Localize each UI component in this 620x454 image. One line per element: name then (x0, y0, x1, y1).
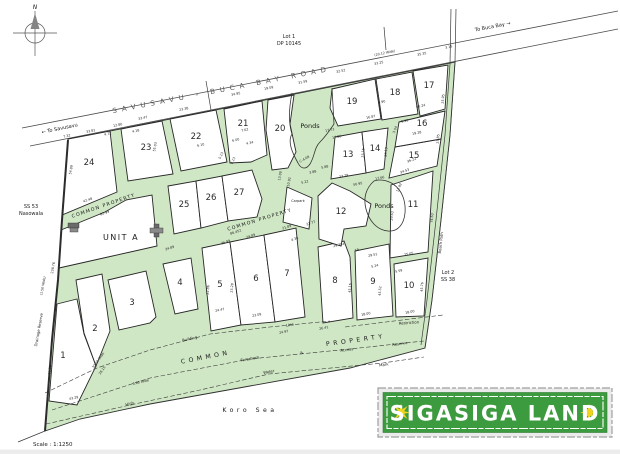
map-label: N (33, 4, 38, 11)
dimension-label: 33.25 (374, 60, 384, 66)
dimension-label: 23.85 (436, 134, 441, 144)
map-label: Lot 1 (283, 34, 296, 40)
lot-number-16: 16 (417, 119, 428, 129)
map-label: Ponds (374, 202, 394, 210)
lot-number-18: 18 (390, 88, 401, 98)
sigasiga-logo: SIGASIGA LAND (378, 388, 612, 437)
lot-number-3: 3 (129, 298, 134, 308)
lot-number-14: 14 (370, 144, 381, 154)
dimension-label: 23.15 (361, 148, 366, 158)
survey-plan-page: SIGASIGA LAND Scale : 1:1250 7.3233.8112… (0, 0, 620, 454)
lot-number-8: 8 (332, 276, 337, 286)
scale-label: Scale : 1:1250 (33, 442, 73, 448)
lot-number-27: 27 (234, 188, 245, 198)
dimension-label: (20.12 Wide) (374, 49, 396, 57)
survey-plan-map: SIGASIGA LAND Scale : 1:1250 7.3233.8112… (0, 0, 620, 454)
lot-number-26: 26 (206, 193, 217, 203)
dimension-label: 25.95 (441, 94, 446, 104)
lot-number-13: 13 (343, 150, 354, 160)
dimension-label: 19 (354, 248, 359, 253)
lot-number-15: 15 (409, 151, 420, 161)
lot-number-1: 1 (60, 351, 65, 361)
logo-text: SIGASIGA LAND (390, 402, 601, 426)
map-label: Ponds (300, 122, 320, 130)
map-label: ← To Savusavu (41, 122, 78, 136)
map-label: To Buca Bay → (474, 21, 512, 34)
survey-tick-east (384, 27, 386, 50)
map-label: Mark (379, 361, 390, 367)
dimension-label: 74.63 (430, 213, 435, 223)
dimension-label: 45.52 (378, 286, 383, 296)
dimension-label: 23.38 (179, 106, 189, 112)
lot-number-2: 2 (92, 324, 97, 334)
map-label: SS 53 (24, 204, 38, 210)
map-label: Drainage Reserve (33, 312, 44, 347)
map-label: Lot 2 (442, 270, 455, 276)
dimension-label: 19.09 (264, 85, 274, 91)
dimension-label: 23.19 (384, 147, 389, 157)
lot-number-17: 17 (424, 81, 435, 91)
dimension-label: 45.76 (420, 282, 425, 292)
dimension-label: 33.47 (138, 115, 148, 121)
lot-number-25: 25 (179, 200, 190, 210)
dimension-label: 23.28 (230, 283, 235, 293)
lot-polygon-21 (224, 101, 267, 163)
lot-number-23: 23 (141, 143, 152, 153)
map-label: Nasowala (19, 211, 43, 217)
dimension-label: 70.08 (48, 365, 53, 375)
dimension-label: 12.80 (113, 122, 123, 128)
dimension-label: 29.63 (390, 211, 395, 221)
dimension-label: 3.15 (445, 44, 453, 49)
north-compass (13, 11, 57, 56)
map-label: Carpark (291, 199, 304, 203)
map-label: DP 10145 (277, 41, 301, 47)
boundary-extension-line (18, 431, 45, 442)
map-label: SS 38 (441, 277, 455, 283)
dimension-label: 45.16 (348, 283, 353, 293)
lot-number-12: 12 (336, 207, 347, 217)
lot-polygon-11 (390, 171, 433, 258)
map-label: Beach Path (437, 231, 444, 253)
lot-number-24: 24 (84, 158, 95, 168)
map-label: Koro Sea (222, 407, 277, 414)
lot-number-22: 22 (191, 132, 202, 142)
dimension-label: 238.76 (50, 262, 56, 274)
dimension-label: 31.59 (298, 79, 308, 85)
lot-number-10: 10 (404, 281, 415, 291)
dimension-label: (1.50 Wide) (39, 276, 46, 296)
lot-number-6: 6 (253, 274, 258, 284)
lot-number-9: 9 (370, 277, 375, 287)
lot-number-11: 11 (408, 200, 419, 210)
lot-number-4: 4 (177, 278, 182, 288)
lot-number-20: 20 (275, 124, 286, 134)
dimension-label: 32.52 (336, 68, 346, 74)
dimension-label: 22.86 (206, 285, 211, 295)
north-arrow-icon (31, 13, 40, 29)
lot-number-5: 5 (217, 280, 222, 290)
dimension-label: 35.35 (417, 51, 427, 57)
lot-number-21: 21 (238, 119, 249, 129)
page-bottom-edge (0, 450, 620, 454)
map-label: UNIT A (103, 233, 139, 242)
lot-number-7: 7 (284, 269, 289, 279)
lot-number-19: 19 (347, 97, 358, 107)
